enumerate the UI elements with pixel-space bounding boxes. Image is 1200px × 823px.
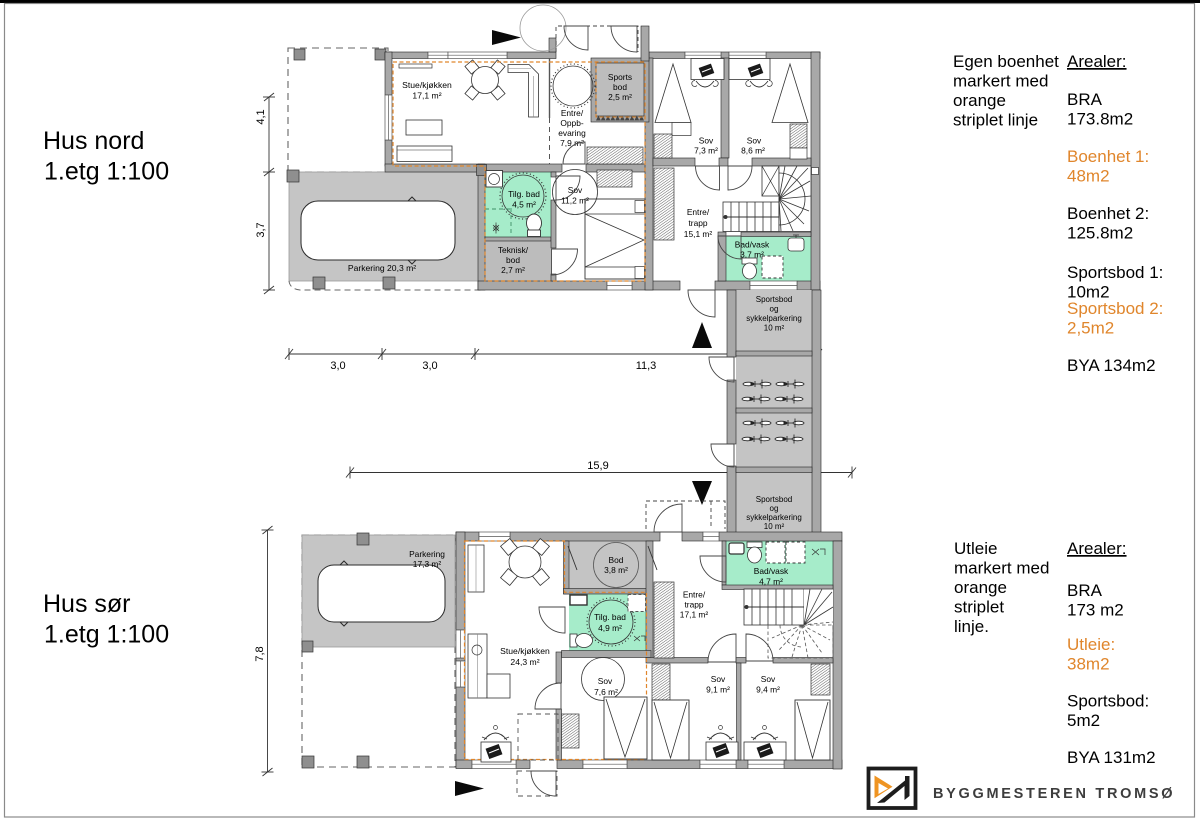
svg-text:8,6 m²: 8,6 m² bbox=[741, 146, 765, 156]
svg-text:7,8: 7,8 bbox=[254, 646, 266, 661]
svg-text:Sportsbod: Sportsbod bbox=[756, 495, 792, 504]
svg-text:15,9: 15,9 bbox=[587, 460, 608, 472]
svg-text:BRA: BRA bbox=[1067, 581, 1103, 600]
svg-text:3,0: 3,0 bbox=[422, 360, 437, 372]
svg-text:10 m²: 10 m² bbox=[764, 324, 785, 333]
svg-text:38m2: 38m2 bbox=[1067, 655, 1110, 674]
svg-text:orange: orange bbox=[954, 578, 1007, 597]
svg-text:trapp: trapp bbox=[684, 600, 703, 610]
svg-text:Sov: Sov bbox=[747, 136, 762, 146]
svg-text:Utleie: Utleie bbox=[954, 539, 997, 558]
svg-text:2,7 m²: 2,7 m² bbox=[501, 265, 525, 275]
svg-text:Sportsbod: Sportsbod bbox=[756, 295, 792, 304]
svg-text:Arealer:: Arealer: bbox=[1067, 539, 1127, 558]
svg-text:1.etg 1:100: 1.etg 1:100 bbox=[44, 158, 169, 186]
svg-text:Entre/: Entre/ bbox=[561, 108, 584, 118]
svg-text:Oppb-: Oppb- bbox=[560, 118, 583, 128]
svg-text:Parkering: Parkering bbox=[409, 549, 445, 559]
svg-text:173 m2: 173 m2 bbox=[1067, 601, 1124, 620]
svg-text:markert med: markert med bbox=[953, 72, 1048, 91]
svg-text:15,1 m²: 15,1 m² bbox=[684, 229, 713, 239]
svg-text:Boenhet 2:: Boenhet 2: bbox=[1067, 204, 1149, 223]
svg-text:striplet: striplet bbox=[954, 598, 1004, 617]
svg-text:1.etg 1:100: 1.etg 1:100 bbox=[44, 621, 169, 649]
svg-text:markert med: markert med bbox=[954, 559, 1049, 578]
svg-text:bod: bod bbox=[613, 82, 627, 92]
svg-text:Bod: Bod bbox=[609, 555, 624, 565]
svg-text:trapp: trapp bbox=[688, 218, 707, 228]
svg-text:9,1 m²: 9,1 m² bbox=[706, 685, 730, 695]
svg-text:4,7 m²: 4,7 m² bbox=[759, 577, 783, 587]
svg-text:BYA 131m2: BYA 131m2 bbox=[1067, 748, 1156, 767]
svg-text:4,9 m²: 4,9 m² bbox=[598, 623, 622, 633]
svg-text:4,5 m²: 4,5 m² bbox=[512, 200, 536, 210]
svg-text:5m2: 5m2 bbox=[1067, 711, 1100, 730]
svg-text:orange: orange bbox=[953, 91, 1006, 110]
svg-text:3,0: 3,0 bbox=[330, 360, 345, 372]
svg-text:sykkelparkering: sykkelparkering bbox=[746, 314, 802, 323]
svg-text:3,8 m²: 3,8 m² bbox=[604, 565, 628, 575]
svg-text:Egen boenhet: Egen boenhet bbox=[953, 52, 1059, 71]
svg-text:17,1 m²: 17,1 m² bbox=[412, 91, 441, 101]
svg-text:7,3 m²: 7,3 m² bbox=[694, 146, 718, 156]
svg-text:10 m²: 10 m² bbox=[764, 522, 785, 531]
svg-text:17,1 m²: 17,1 m² bbox=[680, 610, 709, 620]
svg-text:BYA 134m2: BYA 134m2 bbox=[1067, 356, 1156, 375]
svg-text:BRA: BRA bbox=[1067, 90, 1103, 109]
svg-text:Sportsbod:: Sportsbod: bbox=[1067, 692, 1149, 711]
svg-text:3,7: 3,7 bbox=[255, 222, 267, 237]
svg-text:Hus sør: Hus sør bbox=[43, 590, 131, 618]
svg-text:og: og bbox=[770, 305, 779, 314]
svg-text:Tilg. bad: Tilg. bad bbox=[508, 189, 540, 199]
svg-text:Entre/: Entre/ bbox=[687, 207, 710, 217]
svg-text:Sov: Sov bbox=[598, 676, 613, 686]
svg-text:9,4 m²: 9,4 m² bbox=[756, 685, 780, 695]
svg-text:bod: bod bbox=[506, 255, 520, 265]
svg-text:Entre/: Entre/ bbox=[683, 590, 706, 600]
svg-text:Sportsbod 1:: Sportsbod 1: bbox=[1067, 263, 1163, 282]
svg-text:173.8m2: 173.8m2 bbox=[1067, 110, 1133, 129]
svg-text:48m2: 48m2 bbox=[1067, 167, 1110, 186]
svg-text:Bad/vask: Bad/vask bbox=[754, 566, 789, 576]
svg-text:Parkering 20,3 m²: Parkering 20,3 m² bbox=[348, 263, 416, 273]
svg-text:4,1: 4,1 bbox=[255, 109, 267, 124]
svg-text:Sov: Sov bbox=[761, 674, 776, 684]
svg-text:11,3: 11,3 bbox=[636, 360, 657, 372]
svg-text:2,5 m²: 2,5 m² bbox=[608, 92, 632, 102]
svg-text:sykkelparkering: sykkelparkering bbox=[746, 513, 802, 522]
svg-text:Hus nord: Hus nord bbox=[43, 127, 144, 155]
svg-text:Bad/vask: Bad/vask bbox=[735, 240, 770, 250]
svg-text:Sov: Sov bbox=[568, 185, 583, 195]
svg-text:Stue/kjøkken: Stue/kjøkken bbox=[402, 80, 452, 90]
svg-text:Sports: Sports bbox=[608, 72, 632, 82]
svg-text:Boenhet 1:: Boenhet 1: bbox=[1067, 147, 1149, 166]
svg-text:striplet linje: striplet linje bbox=[953, 111, 1038, 130]
svg-text:Teknisk/: Teknisk/ bbox=[498, 245, 529, 255]
svg-text:Sportsbod 2:: Sportsbod 2: bbox=[1067, 299, 1163, 318]
svg-text:125.8m2: 125.8m2 bbox=[1067, 224, 1133, 243]
svg-text:Stue/kjøkken: Stue/kjøkken bbox=[500, 646, 550, 656]
svg-text:24,3 m²: 24,3 m² bbox=[510, 657, 539, 667]
svg-text:11,2 m²: 11,2 m² bbox=[561, 196, 589, 206]
svg-text:evaring: evaring bbox=[558, 128, 586, 138]
svg-text:2,5m2: 2,5m2 bbox=[1067, 319, 1114, 338]
svg-text:linje.: linje. bbox=[954, 617, 989, 636]
svg-text:Arealer:: Arealer: bbox=[1067, 52, 1127, 71]
svg-text:7,6 m²: 7,6 m² bbox=[594, 687, 618, 697]
svg-text:Utleie:: Utleie: bbox=[1067, 635, 1115, 654]
svg-text:17,3 m²: 17,3 m² bbox=[413, 559, 442, 569]
svg-text:og: og bbox=[770, 504, 779, 513]
svg-text:Sov: Sov bbox=[699, 136, 714, 146]
svg-text:Sov: Sov bbox=[711, 674, 726, 684]
svg-text:Tilg. bad: Tilg. bad bbox=[594, 612, 626, 622]
svg-text:BYGGMESTEREN TROMSØ: BYGGMESTEREN TROMSØ bbox=[933, 786, 1175, 802]
